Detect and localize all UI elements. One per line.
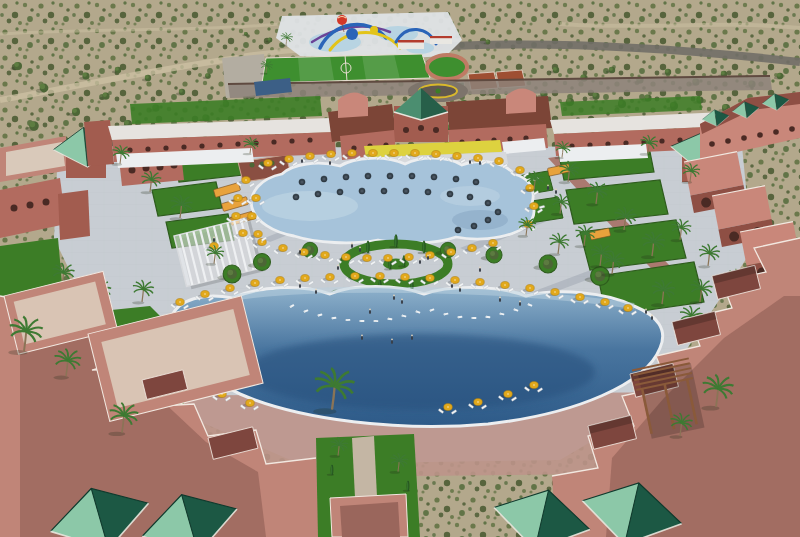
sports-building-roof — [430, 36, 452, 38]
person — [555, 188, 557, 193]
pitch-stripe — [298, 56, 334, 81]
person — [351, 242, 353, 247]
pool-daybed — [403, 188, 409, 194]
pool-daybed — [453, 176, 459, 182]
roundabout-centre — [436, 89, 441, 94]
person — [519, 300, 521, 305]
pool-daybed — [299, 179, 305, 185]
person — [651, 314, 653, 319]
pool-daybed — [471, 223, 477, 229]
pool-daybed — [343, 174, 349, 180]
person — [299, 248, 301, 253]
pool-daybed — [381, 188, 387, 194]
pool-daybed — [473, 179, 479, 185]
resort-aerial-rendering — [0, 0, 800, 537]
person — [393, 294, 395, 299]
person — [301, 157, 303, 162]
person — [213, 236, 215, 241]
person — [369, 308, 371, 313]
pool-daybed — [315, 191, 321, 197]
person — [391, 338, 393, 343]
person — [361, 334, 363, 339]
person — [401, 298, 403, 303]
resort-scene — [0, 0, 800, 537]
person — [419, 258, 421, 263]
person — [359, 246, 361, 251]
person — [299, 282, 301, 287]
in-water-lounger — [346, 319, 351, 321]
person — [329, 159, 331, 164]
pool-daybed — [447, 191, 453, 197]
upper-pool — [251, 158, 534, 243]
central-roof-alley — [316, 434, 420, 537]
pool-daybed — [321, 176, 327, 182]
in-water-lounger — [374, 320, 379, 322]
deep-water — [245, 334, 595, 410]
pool-daybed — [337, 189, 343, 195]
pool-daybed — [455, 227, 461, 233]
person — [337, 264, 339, 269]
pool-daybed — [485, 217, 491, 223]
pool-daybed — [431, 174, 437, 180]
sports-building-roof — [398, 40, 424, 43]
person — [479, 266, 481, 271]
person — [547, 184, 549, 189]
pool-daybed — [495, 209, 501, 215]
pitch-stripe — [362, 54, 400, 80]
planter-shrub — [250, 163, 255, 168]
person — [459, 286, 461, 291]
pool-daybed — [485, 200, 491, 206]
shallow-area — [262, 191, 358, 221]
slide-tower — [346, 28, 358, 40]
pool-daybed — [387, 173, 393, 179]
person — [451, 282, 453, 287]
person — [427, 254, 429, 259]
person — [315, 288, 317, 293]
pool-daybed — [293, 194, 299, 200]
person — [479, 159, 481, 164]
pool-daybed — [467, 194, 473, 200]
in-water-lounger — [360, 320, 365, 322]
person — [469, 158, 471, 163]
balcony-floor — [340, 502, 400, 537]
in-water-lounger — [472, 317, 477, 319]
person — [645, 308, 647, 313]
pool-daybed — [409, 173, 415, 179]
person — [411, 334, 413, 339]
person — [499, 296, 501, 301]
slide-tower — [370, 26, 378, 34]
pool-daybed — [365, 173, 371, 179]
pool-daybed — [359, 188, 365, 194]
pool-daybed — [425, 189, 431, 195]
